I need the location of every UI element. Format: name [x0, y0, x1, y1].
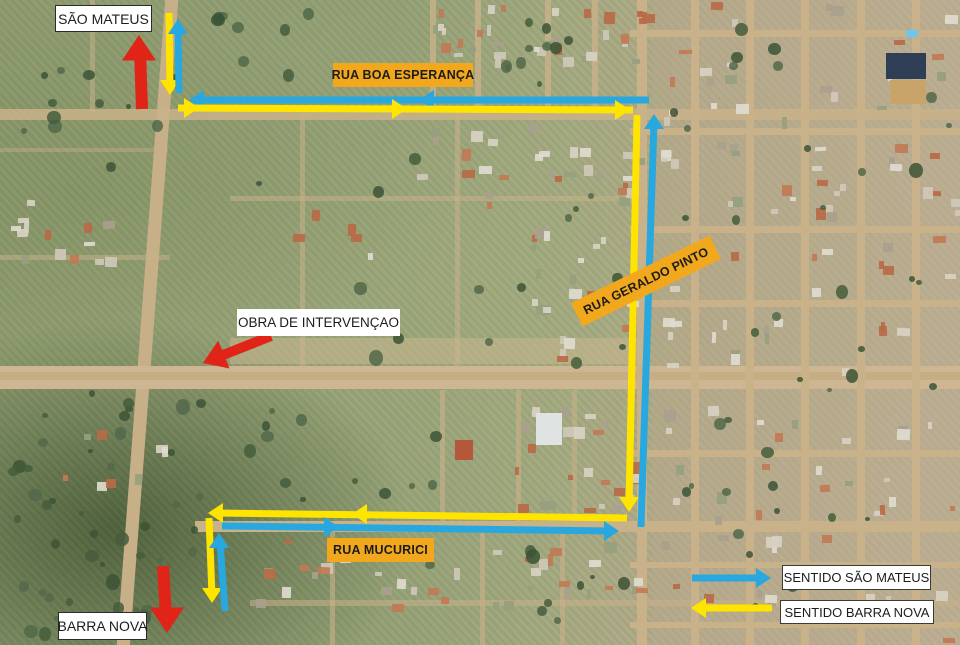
tree	[550, 42, 561, 53]
building	[718, 535, 729, 541]
tree	[19, 581, 29, 591]
road-segment	[195, 521, 960, 532]
building	[312, 210, 321, 222]
building	[603, 30, 609, 40]
road-segment	[637, 0, 647, 645]
tree	[768, 43, 780, 55]
road-segment	[630, 128, 960, 135]
road-segment	[516, 390, 521, 522]
building	[105, 257, 117, 268]
building	[544, 231, 551, 241]
building	[700, 67, 712, 76]
road-segment	[746, 0, 754, 645]
tree	[100, 562, 105, 566]
building	[822, 535, 832, 543]
building	[587, 589, 591, 599]
building	[673, 497, 681, 504]
building	[604, 542, 617, 553]
legend-sentido-barra-nova-text: SENTIDO BARRA NOVA	[785, 606, 930, 619]
building	[834, 191, 840, 196]
building	[880, 505, 886, 515]
building	[598, 504, 604, 509]
tree	[714, 418, 726, 430]
landmark-building	[890, 80, 926, 104]
landmark-building	[536, 413, 562, 445]
tree	[537, 606, 547, 616]
building	[501, 5, 506, 12]
building	[454, 53, 463, 58]
tree	[169, 74, 181, 88]
building	[580, 148, 591, 157]
building	[955, 210, 960, 216]
tree	[280, 24, 291, 35]
building	[935, 591, 947, 601]
tree	[564, 36, 573, 45]
building	[757, 420, 765, 425]
tree	[379, 488, 391, 499]
building	[815, 146, 827, 151]
building	[791, 420, 797, 430]
building	[95, 259, 104, 265]
tree	[501, 60, 512, 73]
building	[543, 307, 551, 313]
building	[559, 581, 570, 587]
label-barra-nova-text: BARRA NOVA	[58, 619, 148, 633]
tree	[590, 575, 595, 579]
road-segment	[691, 0, 699, 645]
building	[488, 5, 495, 14]
building	[933, 236, 946, 244]
tree	[474, 285, 484, 294]
building	[70, 255, 79, 264]
building	[381, 587, 393, 595]
tree	[774, 508, 780, 514]
road-segment	[630, 226, 960, 233]
tree	[909, 276, 915, 282]
tree	[88, 449, 93, 454]
building	[518, 504, 529, 513]
tree	[926, 92, 936, 103]
building	[756, 510, 762, 520]
building	[676, 465, 685, 475]
building	[633, 474, 639, 483]
road-segment	[630, 300, 960, 307]
building	[765, 333, 770, 344]
building	[538, 559, 547, 570]
building	[812, 254, 817, 262]
building	[479, 166, 492, 174]
tree	[48, 99, 57, 108]
building	[619, 197, 630, 206]
tree	[213, 12, 224, 24]
building	[845, 481, 853, 486]
building	[816, 208, 826, 220]
building	[816, 466, 823, 475]
building	[531, 245, 536, 251]
tree	[428, 480, 436, 490]
building	[535, 154, 543, 161]
building	[439, 9, 445, 18]
building	[462, 170, 475, 179]
building	[936, 72, 945, 81]
building	[601, 237, 606, 244]
building	[487, 138, 497, 146]
tree	[682, 487, 691, 496]
tree	[537, 81, 542, 87]
tree	[173, 501, 181, 507]
landmark-building	[886, 53, 926, 79]
building	[536, 269, 541, 279]
tree	[373, 186, 384, 198]
building	[668, 332, 673, 340]
building	[97, 430, 107, 440]
building	[548, 169, 553, 178]
building	[375, 572, 382, 576]
building	[367, 253, 372, 261]
building	[433, 137, 439, 145]
tree	[722, 488, 731, 495]
building	[550, 548, 563, 557]
tree	[836, 285, 848, 299]
tree	[238, 56, 249, 67]
building	[584, 9, 591, 18]
building	[256, 599, 266, 608]
road-segment	[480, 532, 485, 645]
tree	[909, 163, 922, 178]
road-segment	[630, 450, 960, 457]
building	[471, 131, 483, 143]
building	[11, 226, 22, 231]
building	[529, 124, 539, 133]
road-segment	[455, 112, 460, 367]
building	[458, 39, 463, 48]
building	[812, 287, 822, 296]
building	[662, 158, 667, 162]
building	[493, 550, 502, 555]
building	[732, 151, 740, 156]
tree	[47, 111, 60, 125]
tree	[21, 128, 27, 134]
building	[762, 464, 770, 470]
building	[840, 184, 846, 191]
building	[494, 52, 506, 59]
label-rua-boa-esperanca-text: RUA BOA ESPERANÇA	[332, 69, 475, 82]
building	[27, 200, 36, 206]
building	[555, 176, 562, 182]
label-obra-de-intervencao: OBRA DE INTERVENÇAO	[237, 309, 400, 336]
building	[578, 258, 584, 263]
building	[593, 243, 600, 248]
tree	[752, 603, 759, 610]
building	[504, 600, 514, 610]
building	[597, 173, 603, 180]
tree	[115, 532, 129, 546]
tree	[57, 67, 65, 74]
tree	[106, 162, 115, 172]
tree	[51, 539, 60, 549]
label-barra-nova: BARRA NOVA	[58, 612, 147, 640]
tree	[670, 108, 679, 116]
building	[897, 428, 910, 440]
building	[822, 249, 833, 255]
tree	[191, 526, 198, 534]
building	[712, 332, 717, 343]
building	[614, 488, 626, 496]
landmark-building	[455, 440, 473, 460]
tree	[28, 489, 42, 501]
building	[620, 34, 628, 44]
building	[55, 249, 66, 260]
building	[477, 30, 483, 37]
tree	[296, 414, 306, 425]
building	[827, 212, 837, 223]
tree	[140, 522, 150, 532]
building	[552, 8, 559, 16]
building	[487, 202, 493, 209]
tree	[571, 357, 582, 369]
building	[392, 604, 404, 612]
building	[670, 77, 676, 88]
building	[24, 220, 29, 232]
tree	[262, 421, 270, 431]
building	[704, 594, 715, 604]
tree	[66, 598, 73, 606]
tree	[107, 463, 115, 471]
building	[708, 406, 720, 417]
detour-map: SÃO MATEUS RUA BOA ESPERANÇA RUA GERALDO…	[0, 0, 960, 645]
building	[557, 356, 568, 362]
label-rua-mucurici: RUA MUCURICI	[327, 538, 434, 562]
building	[944, 15, 957, 24]
building	[601, 421, 610, 428]
building	[106, 479, 116, 488]
tree	[119, 411, 130, 421]
building	[293, 234, 305, 243]
building	[633, 578, 643, 587]
tree	[516, 57, 526, 68]
label-sao-mateus-text: SÃO MATEUS	[58, 12, 149, 26]
building	[706, 77, 713, 85]
building	[316, 567, 329, 575]
tree	[300, 497, 305, 501]
tree	[38, 438, 48, 447]
building	[438, 24, 444, 31]
tree	[577, 581, 585, 590]
building	[732, 197, 743, 207]
building	[812, 166, 822, 171]
building	[135, 474, 143, 485]
building	[782, 185, 792, 196]
building	[605, 586, 613, 590]
tree	[409, 483, 415, 488]
tree	[485, 338, 493, 346]
tree	[176, 399, 190, 415]
tree	[14, 515, 21, 523]
building	[282, 587, 291, 598]
legend-item-sentido-sao-mateus: SENTIDO SÃO MATEUS	[782, 565, 931, 590]
tree	[261, 431, 274, 442]
building	[894, 40, 905, 45]
tree	[684, 125, 691, 132]
building	[626, 188, 634, 198]
tree	[106, 574, 120, 590]
tree	[619, 344, 626, 350]
building	[634, 196, 639, 204]
tree	[729, 62, 738, 70]
road-segment	[230, 196, 635, 201]
tree	[804, 145, 811, 152]
building	[568, 475, 573, 480]
building	[943, 638, 955, 643]
building	[499, 175, 509, 180]
building	[441, 43, 451, 53]
building	[593, 429, 604, 434]
building	[735, 104, 748, 114]
tree	[828, 513, 836, 522]
building	[611, 505, 621, 513]
tree	[369, 350, 383, 365]
building	[897, 328, 910, 337]
building	[945, 273, 956, 278]
label-rua-boa-esperanca: RUA BOA ESPERANÇA	[333, 63, 473, 87]
building	[831, 91, 839, 101]
tree	[525, 45, 533, 52]
tree	[573, 206, 579, 212]
building	[950, 506, 956, 511]
building	[825, 4, 832, 11]
building	[710, 103, 716, 110]
road-segment	[0, 372, 960, 380]
tree	[946, 123, 951, 129]
tree	[354, 282, 368, 294]
building	[723, 320, 727, 330]
road-segment	[475, 0, 481, 110]
tree	[42, 500, 52, 510]
building	[461, 149, 470, 161]
tree	[772, 312, 781, 321]
building	[532, 299, 538, 306]
building	[731, 354, 740, 365]
building	[930, 153, 940, 159]
building	[528, 444, 536, 453]
building	[623, 152, 633, 159]
road-segment	[0, 148, 168, 152]
building	[711, 2, 723, 11]
label-rua-mucurici-text: RUA MUCURICI	[333, 544, 428, 557]
building	[628, 495, 635, 504]
building	[782, 117, 787, 129]
tree	[232, 22, 243, 33]
building	[775, 433, 783, 442]
building	[663, 409, 676, 421]
tree	[256, 181, 262, 186]
building	[563, 57, 574, 67]
building	[728, 201, 733, 207]
road-segment	[440, 390, 445, 522]
building	[469, 47, 476, 52]
building	[485, 192, 493, 199]
building	[432, 128, 439, 136]
building	[890, 163, 903, 171]
building	[584, 165, 594, 176]
building	[667, 363, 679, 368]
building	[817, 180, 828, 187]
building	[493, 42, 504, 47]
tree	[916, 280, 922, 285]
building	[515, 467, 520, 475]
road-segment	[0, 109, 960, 120]
building	[622, 242, 632, 247]
building	[589, 560, 601, 567]
tree	[544, 599, 552, 606]
landmark-building	[906, 30, 918, 37]
building	[564, 338, 575, 349]
tree	[517, 283, 526, 292]
building	[673, 584, 680, 589]
building	[103, 221, 115, 229]
building	[584, 508, 596, 513]
building	[671, 159, 680, 170]
building	[348, 224, 356, 236]
building	[539, 501, 547, 510]
building	[441, 597, 449, 604]
building	[585, 414, 596, 419]
road-segment	[801, 0, 809, 645]
building	[928, 422, 932, 429]
building	[889, 496, 896, 506]
tree	[733, 529, 743, 539]
building	[661, 541, 670, 550]
building	[564, 172, 576, 177]
building	[632, 59, 640, 65]
building	[618, 188, 627, 195]
legend-sentido-sao-mateus-text: SENTIDO SÃO MATEUS	[784, 571, 930, 584]
building	[45, 230, 52, 240]
building	[790, 197, 796, 201]
tree	[526, 549, 540, 563]
building	[715, 516, 723, 525]
tree	[196, 493, 203, 501]
road-segment	[572, 390, 577, 522]
building	[923, 187, 933, 199]
building	[932, 54, 944, 60]
building	[717, 142, 726, 149]
building	[520, 423, 530, 433]
building	[641, 14, 654, 23]
building	[731, 252, 739, 261]
tree	[136, 552, 144, 559]
road-segment	[430, 0, 436, 110]
tree	[554, 617, 561, 624]
building	[63, 475, 68, 481]
tree	[565, 214, 572, 222]
building	[397, 579, 407, 589]
building	[534, 47, 539, 52]
building	[757, 590, 762, 598]
tree	[157, 558, 163, 563]
building	[574, 427, 585, 439]
building	[765, 595, 777, 603]
tree	[352, 478, 358, 484]
tree	[929, 383, 937, 390]
building	[604, 12, 616, 24]
building	[569, 147, 578, 159]
tree	[95, 99, 104, 108]
building	[84, 242, 95, 247]
tree	[682, 215, 689, 221]
building	[416, 174, 428, 180]
building	[664, 116, 670, 125]
